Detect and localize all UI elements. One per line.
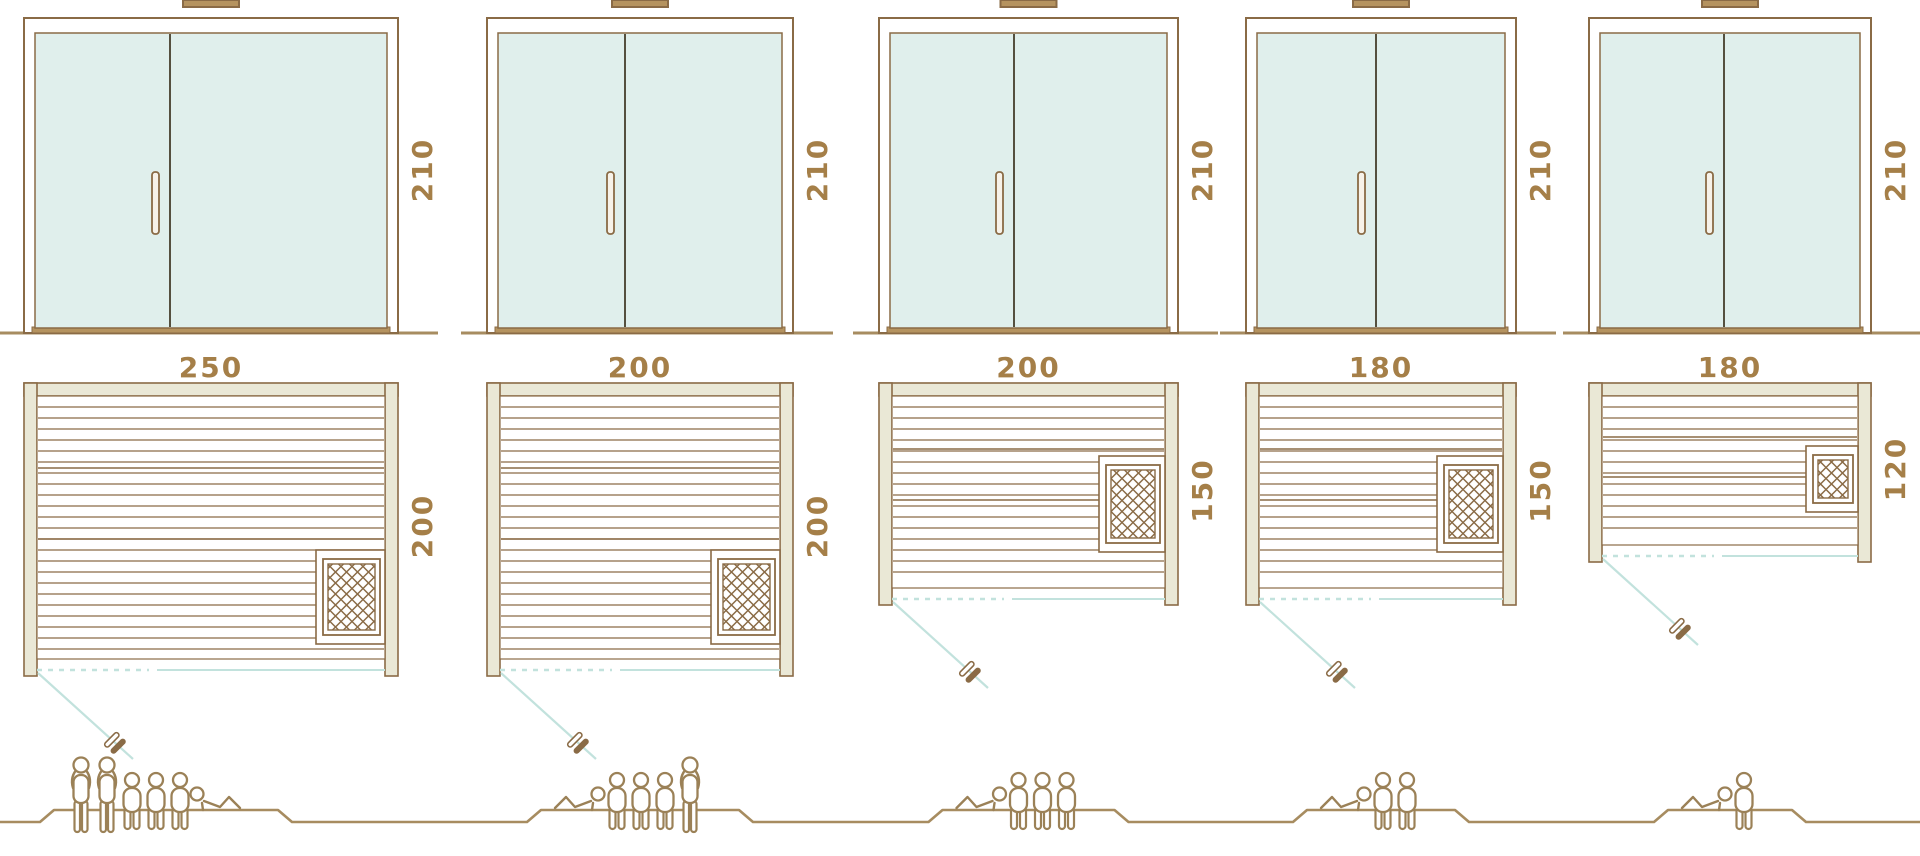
person-sitting-icon (657, 773, 674, 829)
sauna-200x150-floor-plan (879, 383, 1178, 688)
person-sitting-icon (1736, 773, 1753, 829)
person-sitting-icon (1399, 773, 1416, 829)
door-swing (500, 670, 780, 759)
plan-wall-top (1246, 383, 1516, 396)
sauna-200x150-capacity-figures (957, 773, 1076, 829)
figure-torso (1399, 788, 1416, 812)
plan-wall-top (879, 383, 1178, 396)
roof-vent (1702, 0, 1758, 7)
sauna-200x200: 210200200 (461, 0, 834, 832)
figure-torso (609, 788, 626, 812)
person-standing-icon (98, 758, 116, 833)
door-handle (1358, 172, 1365, 234)
door-handle (996, 172, 1003, 234)
figure-head (1719, 788, 1732, 801)
figure-head (1400, 773, 1414, 787)
figure-torso (657, 788, 674, 812)
figure-arm (994, 803, 995, 810)
width-dimension-label: 180 (1698, 351, 1762, 384)
figure-head (74, 758, 89, 773)
figure-head (1358, 788, 1371, 801)
person-lying-icon (555, 788, 605, 811)
width-dimension-label: 200 (996, 351, 1060, 384)
figure-leg (691, 801, 697, 832)
plan-wall-left (1246, 383, 1259, 605)
figure-head (683, 758, 698, 773)
plan-wall-right (780, 383, 793, 676)
plan-wall-left (1589, 383, 1602, 562)
figure-arm (202, 803, 203, 810)
width-dimension-label: 180 (1349, 351, 1413, 384)
figure-leg (108, 801, 114, 832)
roof-vent (1001, 0, 1057, 7)
height-dimension-label: 210 (1524, 138, 1557, 202)
plan-wall-right (1165, 383, 1178, 605)
sauna-180x120: 210180120 (1563, 0, 1920, 829)
figure-body (555, 797, 591, 808)
sauna-250x200-front-elevation (24, 0, 398, 333)
glass-doors (1600, 33, 1860, 328)
capacity-baseline (0, 810, 1920, 822)
figure-head (173, 773, 187, 787)
figure-head (1376, 773, 1390, 787)
heater-element (723, 564, 770, 630)
sauna-200x200-floor-plan (487, 383, 793, 759)
figure-torso (683, 775, 698, 803)
sauna-200x200-front-elevation (487, 0, 793, 333)
figure-torso (172, 788, 189, 812)
height-dimension-label: 210 (406, 138, 439, 202)
figure-torso (633, 788, 650, 812)
roof-vent (1353, 0, 1409, 7)
figure-body (1321, 797, 1357, 808)
figure-torso (74, 775, 89, 803)
figure-head (125, 773, 139, 787)
depth-dimension-label: 200 (801, 494, 834, 558)
figure-head (149, 773, 163, 787)
depth-dimension-label: 200 (406, 494, 439, 558)
person-sitting-icon (148, 773, 165, 829)
plan-wall-right (1858, 383, 1871, 562)
figure-torso (124, 788, 141, 812)
person-lying-icon (1321, 788, 1371, 811)
depth-dimension-label: 150 (1186, 458, 1219, 522)
figure-leg (101, 801, 107, 832)
sauna-180x150-floor-plan (1246, 383, 1516, 688)
depth-dimension-label: 150 (1524, 458, 1557, 522)
figure-head (1737, 773, 1751, 787)
glass-doors (890, 33, 1167, 328)
width-dimension-label: 250 (179, 351, 243, 384)
figure-head (634, 773, 648, 787)
heater-element (1111, 470, 1155, 538)
figure-torso (1375, 788, 1392, 812)
sauna-180x120-capacity-figures (1682, 773, 1753, 829)
sauna-250x200-floor-plan (24, 383, 398, 759)
door-handle (152, 172, 159, 234)
sauna-250x200: 210250200 (0, 0, 439, 832)
figure-head (1036, 773, 1050, 787)
glass-doors (498, 33, 782, 328)
figure-torso (1736, 788, 1753, 812)
glass-doors (35, 33, 387, 328)
door-swing (892, 599, 1165, 688)
sauna-size-comparison-diagram: 2102502002102002002102001502101801502101… (0, 0, 1920, 856)
width-dimension-label: 200 (608, 351, 672, 384)
door-swing (37, 670, 385, 759)
figure-arm (592, 803, 593, 810)
height-dimension-label: 210 (1186, 138, 1219, 202)
figure-torso (1058, 788, 1075, 812)
person-sitting-icon (1034, 773, 1051, 829)
figure-head (191, 788, 204, 801)
person-standing-icon (72, 758, 90, 833)
figure-leg (684, 801, 690, 832)
door-handle (1706, 172, 1713, 234)
figure-leg (82, 801, 88, 832)
figure-leg (75, 801, 81, 832)
sauna-180x150-front-elevation (1246, 0, 1516, 333)
figure-torso (148, 788, 165, 812)
person-sitting-icon (609, 773, 626, 829)
plan-wall-right (1503, 383, 1516, 605)
sauna-180x120-floor-plan (1589, 383, 1871, 645)
figure-body (957, 797, 993, 808)
depth-dimension-label: 120 (1879, 437, 1912, 501)
person-sitting-icon (1058, 773, 1075, 829)
figure-head (610, 773, 624, 787)
plan-wall-left (24, 383, 37, 676)
plan-wall-top (487, 383, 793, 396)
figure-arm (1719, 803, 1720, 810)
heater-element (1818, 460, 1848, 498)
door-handle (607, 172, 614, 234)
door-swing (1259, 599, 1503, 688)
person-sitting-icon (1375, 773, 1392, 829)
figure-head (100, 758, 115, 773)
person-lying-icon (1682, 788, 1732, 811)
figure-head (1060, 773, 1074, 787)
roof-vent (612, 0, 668, 7)
figure-torso (1010, 788, 1027, 812)
plan-wall-right (385, 383, 398, 676)
person-sitting-icon (1010, 773, 1027, 829)
sauna-180x150: 210180150 (1220, 0, 1557, 829)
heater-element (1449, 470, 1493, 538)
glass-doors (1257, 33, 1505, 328)
person-sitting-icon (172, 773, 189, 829)
plan-wall-top (1589, 383, 1871, 396)
figure-head (993, 788, 1006, 801)
person-lying-icon (957, 788, 1007, 811)
plan-wall-top (24, 383, 398, 396)
heater-element (328, 564, 375, 630)
figure-head (592, 788, 605, 801)
person-sitting-icon (124, 773, 141, 829)
figure-arm (1358, 803, 1359, 810)
height-dimension-label: 210 (801, 138, 834, 202)
sauna-180x120-front-elevation (1589, 0, 1871, 333)
figure-body (1682, 797, 1718, 808)
height-dimension-label: 210 (1879, 138, 1912, 202)
sauna-250x200-capacity-figures (72, 758, 240, 833)
person-sitting-icon (633, 773, 650, 829)
figure-body (204, 797, 240, 808)
sauna-200x150-front-elevation (879, 0, 1178, 333)
sauna-180x150-capacity-figures (1321, 773, 1416, 829)
figure-torso (100, 775, 115, 803)
figure-head (1012, 773, 1026, 787)
sauna-200x200-capacity-figures (555, 758, 699, 833)
person-lying-icon (191, 788, 241, 811)
figure-head (658, 773, 672, 787)
person-standing-icon (681, 758, 699, 833)
diagram-svg: 2102502002102002002102001502101801502101… (0, 0, 1920, 856)
sauna-200x150: 210200150 (853, 0, 1219, 829)
door-swing (1602, 556, 1858, 645)
plan-wall-left (879, 383, 892, 605)
plan-wall-left (487, 383, 500, 676)
roof-vent (183, 0, 239, 7)
figure-torso (1034, 788, 1051, 812)
